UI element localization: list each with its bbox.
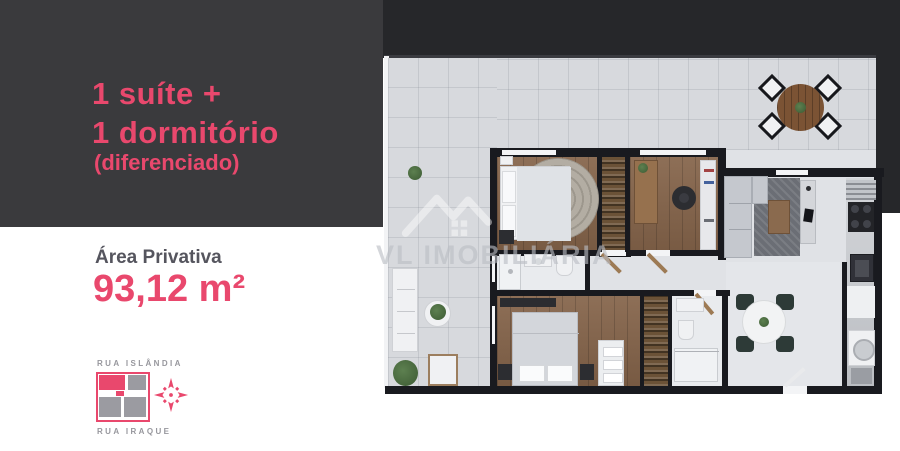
table-plant — [795, 102, 806, 113]
bathroom2-vanity — [676, 298, 704, 312]
suite-tv-console — [500, 298, 556, 307]
desk-plant — [638, 163, 648, 173]
bedroom1-nightstand — [500, 156, 513, 165]
lot-cell — [124, 397, 146, 417]
kitchen-appliance — [851, 368, 872, 384]
kitchen-vent — [846, 180, 876, 200]
toilet2 — [678, 320, 694, 340]
wall-closet2-east — [668, 296, 672, 386]
lot-cell-highlight — [99, 375, 125, 390]
bookshelf — [700, 160, 716, 250]
office-chair — [672, 186, 696, 210]
dining-chair — [776, 336, 794, 352]
lot-quadrants-map — [96, 372, 150, 422]
wall-bath2-north — [640, 290, 730, 296]
lot-cell — [128, 375, 146, 390]
window-suite — [492, 306, 495, 344]
living-sofa-chaise — [752, 176, 768, 204]
side-table-plant — [430, 304, 446, 320]
headline-note: (diferenciado) — [94, 150, 239, 176]
wall-right — [874, 168, 882, 394]
terrace-sofa — [392, 268, 418, 352]
dining-table-plant — [759, 317, 769, 327]
wall-kitchen-west — [842, 262, 847, 386]
wall-wardrobe-right — [625, 148, 630, 252]
lot-notch — [116, 391, 124, 396]
private-area-value: 93,12 m² — [93, 268, 245, 311]
headline: 1 suíte + 1 dormitório — [92, 74, 279, 152]
headline-line1: 1 suíte + — [92, 74, 279, 113]
wall-suite-north — [490, 290, 640, 296]
kitchen-counter — [847, 286, 875, 318]
house-check-logo-icon — [400, 184, 492, 242]
terrace-plant-small — [408, 166, 422, 180]
cooktop — [848, 202, 874, 232]
terrace-armchair — [428, 354, 458, 386]
street-label-bottom: RUA IRAQUE — [97, 427, 171, 436]
headline-line2: 1 dormitório — [92, 113, 279, 152]
compass-rose-icon — [152, 376, 190, 414]
coffee-table — [768, 200, 790, 234]
wall-bath2-east — [722, 290, 728, 394]
window-bedroom2 — [640, 150, 706, 155]
shower2 — [674, 348, 718, 382]
washing-machine — [848, 330, 875, 366]
suite-nightstand-right — [580, 364, 594, 380]
private-area-label: Área Privativa — [95, 247, 222, 269]
wall-hall-north — [626, 250, 726, 256]
bedroom1-bed — [500, 166, 570, 240]
watermark-text: VL IMOBILIÁRIA — [376, 240, 614, 271]
suite-nightstand-left — [498, 364, 512, 380]
street-label-top: RUA ISLÂNDIA — [97, 359, 183, 368]
wall-closet2-west — [640, 296, 644, 386]
terrace-plant — [393, 360, 418, 386]
real-estate-flyer: 1 suíte + 1 dormitório (diferenciado) Ár… — [0, 0, 900, 451]
lot-cell — [99, 397, 121, 417]
plan-background-top — [383, 0, 900, 58]
living-sofa — [724, 176, 752, 258]
window-bedroom1 — [502, 150, 556, 155]
window-living — [776, 170, 808, 175]
kitchen-sink — [850, 254, 874, 282]
tv-console — [800, 180, 816, 244]
suite-shelf — [598, 340, 624, 386]
suite-bed — [512, 312, 578, 386]
wall-bottom — [385, 386, 882, 394]
